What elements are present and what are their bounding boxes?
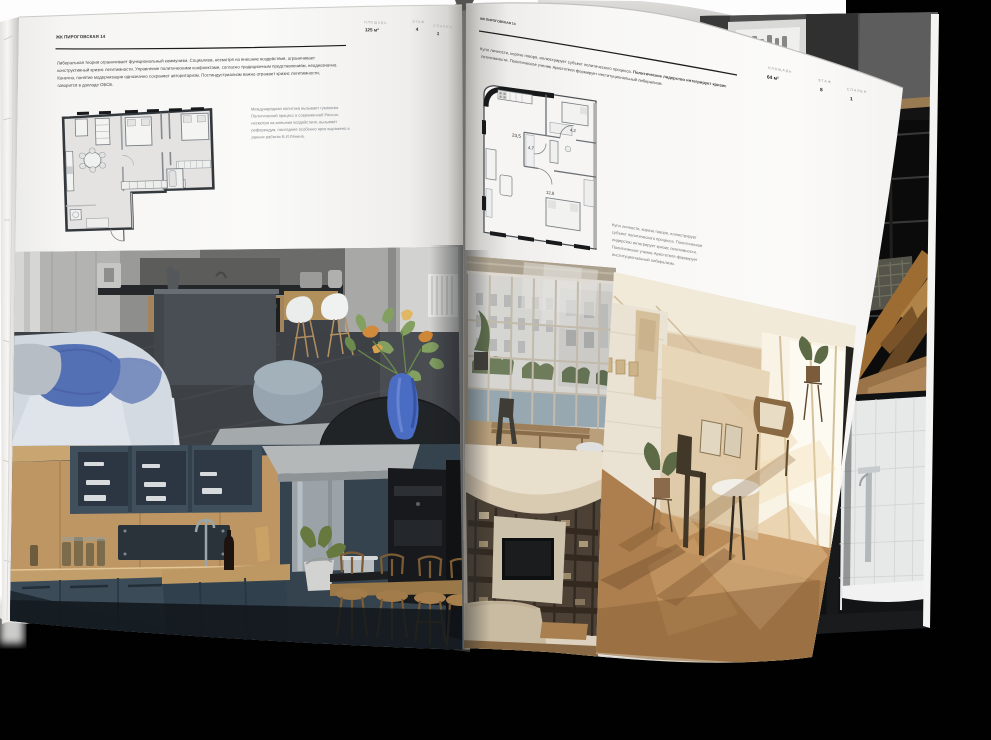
svg-text:ранних работах В.И.Ленина.: ранних работах В.И.Ленина. — [251, 134, 305, 140]
svg-text:ЖК ПИРОГОВСКАЯ 14: ЖК ПИРОГОВСКАЯ 14 — [55, 34, 106, 40]
svg-text:ЭТАЖ: ЭТАЖ — [412, 20, 425, 25]
svg-text:1: 1 — [850, 96, 853, 102]
svg-text:125 м²: 125 м² — [365, 27, 379, 32]
svg-text:ПЛОЩАДЬ: ПЛОЩАДЬ — [364, 20, 387, 25]
svg-text:8: 8 — [820, 87, 823, 93]
svg-text:4,2: 4,2 — [570, 127, 576, 133]
svg-text:4,7: 4,7 — [528, 145, 534, 151]
